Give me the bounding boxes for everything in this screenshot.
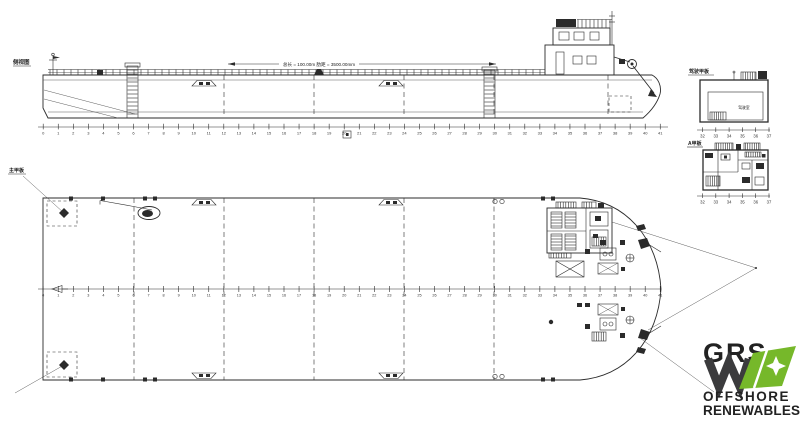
frame-number: 35 [740,134,745,139]
cleat [551,378,555,382]
frame-number: 41 [658,131,663,136]
bitt [621,307,625,311]
profile-view-label: 侧视图 [13,58,30,66]
frame-number: 35 [568,294,572,298]
chock-mark [206,201,210,204]
frame-number: 40 [643,131,648,136]
frame-number: 36 [753,200,758,205]
frame-number: 22 [372,294,376,298]
cleat [143,197,147,201]
cleat [551,197,555,201]
frame-number: 37 [767,200,772,205]
frame-number: 24 [402,131,407,136]
frame-number: 13 [237,294,241,298]
cleat [101,378,105,382]
frame-number: 23 [387,131,392,136]
frame-number: 20 [342,294,346,298]
frame-number: 25 [417,131,422,136]
frame-number: 33 [538,131,543,136]
bitt [585,303,590,307]
frame-number: 37 [767,134,772,139]
chock-mark [199,82,203,85]
chock-mark [386,82,390,85]
mark-dot [346,133,349,136]
frame-number: 5 [117,294,119,298]
cleat [101,197,105,201]
frame-number: 34 [727,134,732,139]
equipment-box [598,203,604,208]
frame-number: 39 [628,131,633,136]
frame-number: 33 [538,294,542,298]
frame-number: 41 [658,294,662,298]
frame-number: 35 [568,131,573,136]
frame-number: 13 [237,131,242,136]
frame-number: 39 [628,294,632,298]
frame-number: 29 [478,294,482,298]
frame-number: 22 [372,131,377,136]
davit-pin [631,63,634,66]
frame-number: 33 [713,134,718,139]
chock-mark [199,374,203,377]
bridge-room-label: 驾驶室 [738,105,750,110]
frame-number: 7 [147,294,149,298]
cleat [541,378,545,382]
frame-number: 4 [102,294,104,298]
cleat [153,378,157,382]
frame-number: 15 [267,294,271,298]
deck-drain [549,320,553,324]
chock-mark [393,201,397,204]
frame-number: 21 [357,294,361,298]
frame-number: 11 [207,294,211,298]
frame-number: 18 [312,294,316,298]
frame-number: 27 [447,294,451,298]
frame-number: 12 [222,294,226,298]
bitt [585,249,590,254]
roof-vent-fins [558,202,574,208]
bitt [577,303,582,307]
frame-number: 16 [282,131,287,136]
frame-number: 9 [178,294,180,298]
chock-mark [199,201,203,204]
furniture-item [742,177,750,183]
furniture-item [595,216,601,221]
frame-number: 38 [613,294,617,298]
frame-number: 32 [700,134,705,139]
chock-mark [386,201,390,204]
frame-number: 36 [583,294,587,298]
chock-mark [206,82,210,85]
frame-number: 35 [740,200,745,205]
drawing-sheet: 侧视图 [0,0,800,424]
frame-number: 34 [727,200,732,205]
mooring-bitt [97,70,103,75]
frame-number: 27 [447,131,452,136]
frame-number: 37 [598,294,602,298]
frame-number: 14 [252,131,257,136]
general-arrangement-drawing: 侧视图 [0,0,800,424]
frame-number: 12 [222,131,227,136]
anchor-icon [142,210,153,217]
frame-number: 33 [713,200,718,205]
frame-number: 16 [282,294,286,298]
frame-number: 31 [508,131,513,136]
dimension-text: 总长 = 100.00m 肋距 = 3500.00mm [283,61,355,68]
cleat [69,378,73,382]
bitt [621,267,625,271]
sheet-background [0,0,800,424]
frame-number: 1 [57,294,59,298]
vanish-point [755,267,757,269]
frame-number: 37 [598,131,603,136]
frame-number: 26 [432,294,436,298]
frame-number: 18 [312,131,317,136]
bitt [620,333,625,338]
frame-number: 21 [357,131,362,136]
a-deck-label: A甲板 [688,140,703,147]
bitt [620,240,625,245]
frame-number: 29 [477,131,482,136]
frame-number: 30 [492,131,497,136]
cleat [541,197,545,201]
frame-number: 40 [643,294,647,298]
chock-mark [393,374,397,377]
frame-number: 36 [583,131,588,136]
frame-number: 32 [700,200,705,205]
frame-number: 17 [297,294,301,298]
cleat [143,378,147,382]
bridge-deck-label: 驾驶甲板 [689,68,710,75]
frame-number: 36 [753,134,758,139]
equipment-box [758,71,767,79]
frame-number: 28 [462,294,466,298]
frame-number: 34 [553,131,558,136]
frame-number: 19 [327,294,331,298]
frame-number: 34 [553,294,557,298]
logo-line2-text: OFFSHORE [703,389,790,404]
bitt [585,324,590,329]
frame-number: 30 [493,294,497,298]
furniture-item [724,156,727,159]
frame-number: 32 [523,294,527,298]
berth-stripes [747,152,760,157]
name-board [556,19,576,27]
frame-number: 14 [252,294,256,298]
frame-number: 19 [327,131,332,136]
frame-number: 6 [132,294,134,298]
equipment-box [736,144,741,150]
cleat [153,197,157,201]
roof-vent-fins [746,143,759,150]
cleat [69,197,73,201]
frame-number: 24 [402,294,406,298]
logo-line3-text: RENEWABLES [703,403,800,418]
frame-number: 32 [523,131,528,136]
furniture-item [756,163,764,169]
frame-number: 38 [613,131,618,136]
frame-number: 17 [297,131,302,136]
frame-number: 31 [508,294,512,298]
chock-mark [386,374,390,377]
furniture-item [762,154,766,158]
frame-number: 28 [462,131,467,136]
frame-number: 23 [387,294,391,298]
vent-fins [551,253,567,258]
frame-number: 26 [432,131,437,136]
chock-mark [206,374,210,377]
frame-number: 2 [72,294,74,298]
frame-number: 0 [42,294,44,298]
frame-number: 10 [192,294,196,298]
frame-number: 25 [417,294,421,298]
frame-number: 10 [191,131,196,136]
frame-number: 15 [267,131,272,136]
furniture-item [705,153,713,158]
main-deck-label: 主甲板 [9,167,25,174]
chock-mark [393,82,397,85]
frame-number: 8 [163,294,165,298]
frame-number: 3 [87,294,89,298]
